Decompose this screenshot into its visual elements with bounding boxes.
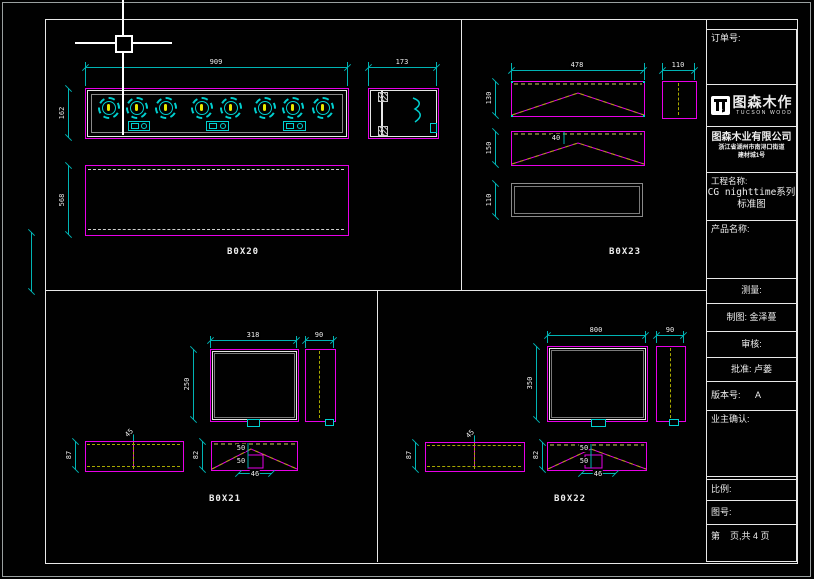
clip-profile-icon (410, 97, 424, 124)
dim-value: 800 (589, 326, 604, 334)
switch-plate-icon[interactable] (206, 121, 229, 131)
cad-viewport: 909 162 173 568 B0X20 40 (0, 0, 814, 579)
dim-value: 110 (485, 193, 493, 208)
burner-knob-icon[interactable] (282, 97, 304, 119)
order-no-label: 订单号: (707, 30, 796, 44)
burner-knob-icon[interactable] (312, 97, 334, 119)
dim-value: 87 (405, 450, 413, 460)
project-label: 工程名称: (707, 173, 796, 187)
project-value-line1: CG nighttime系列 (707, 187, 796, 199)
dimension-line (85, 67, 348, 68)
title-block: 订单号: 图森木作 TUCSON WOOD 图森木业有限公司 浙江省湖州市南浔口… (706, 29, 797, 562)
dim-value: 318 (246, 331, 261, 339)
scale-label: 比例: (707, 480, 796, 495)
stray-dimension-line (31, 232, 32, 292)
dim-value: 46 (593, 470, 603, 478)
extension-line (644, 63, 645, 80)
leader-line (133, 434, 134, 441)
dim-value: 46 (250, 470, 260, 478)
sheet-no-cell: 图号: (707, 501, 796, 525)
owner-confirm-cell: 业主确认: (707, 411, 796, 477)
tucson-logo-icon (711, 96, 730, 115)
box22-label: B0X22 (554, 494, 586, 504)
pickbox (115, 35, 133, 53)
knob-pointer (164, 104, 167, 111)
dim-value: 568 (58, 193, 66, 208)
plan-dash-top (88, 169, 344, 170)
dim-value: 50 (236, 457, 246, 465)
dimension-line (210, 340, 297, 341)
audit-label: 审核: (707, 332, 796, 350)
plate-circle (297, 123, 303, 129)
dim-value: 90 (665, 326, 675, 334)
company-cell: 图森木业有限公司 浙江省湖州市南浔口街道 建材城1号 (707, 127, 796, 173)
brand-cell: 图森木作 TUCSON WOOD (707, 85, 796, 127)
scale-cell: 比例: (707, 480, 796, 501)
dimension-line (536, 346, 537, 420)
company-address-2: 建材城1号 (707, 152, 796, 160)
box21-pyramid[interactable] (211, 441, 298, 471)
knob-pointer (263, 104, 266, 111)
box23-side-view[interactable] (662, 81, 697, 119)
quadrant-divider-bottom (377, 290, 378, 562)
box20-label: B0X20 (227, 247, 259, 257)
burner-knob-icon[interactable] (155, 97, 177, 119)
dimension-line (511, 70, 644, 71)
product-cell: 产品名称: (707, 221, 796, 279)
side-center-dash (670, 348, 671, 418)
box21-label: B0X21 (209, 494, 241, 504)
knob-pointer (107, 104, 110, 111)
knob-pointer (200, 104, 203, 111)
burner-knob-icon[interactable] (126, 97, 148, 119)
crosshair-vertical (122, 0, 124, 135)
dim-value: 50 (579, 457, 589, 465)
dimension-line (547, 335, 646, 336)
version-value: A (745, 382, 761, 401)
approve-cell: 批准: 卢蒌 (707, 358, 796, 382)
strip-center-dash (133, 442, 134, 469)
dim-value: 40 (551, 134, 561, 142)
brand-name: 图森木作 (733, 95, 793, 110)
box22-front-recess (551, 350, 644, 418)
box22-side-foot (669, 419, 679, 426)
dim-value: 150 (485, 141, 493, 156)
burner-knob-icon[interactable] (191, 97, 213, 119)
project-cell: 工程名称: CG nighttime系列 标准图 (707, 173, 796, 221)
dimension-line (305, 340, 334, 341)
quadrant-divider-top (461, 19, 462, 290)
dim-value: 130 (485, 91, 493, 106)
dim-value: 87 (65, 450, 73, 460)
dimension-line (68, 165, 69, 235)
brand-subtitle: TUCSON WOOD (736, 110, 792, 116)
dim-value: 82 (192, 450, 200, 460)
audit-cell: 审核: (707, 332, 796, 358)
box22-strip[interactable] (425, 442, 525, 472)
draft-cell: 制图: 金泽蔓 (707, 304, 796, 332)
dimension-line (656, 335, 684, 336)
strip-center-dash (474, 443, 475, 469)
switch-plate-icon[interactable] (283, 121, 306, 131)
dim-value: 350 (526, 376, 534, 391)
dimension-line (542, 442, 543, 470)
plate-circle (220, 123, 226, 129)
dim-value: 173 (395, 58, 410, 66)
plate-circle (141, 123, 147, 129)
dimension-line (68, 88, 69, 138)
company-name: 图森木业有限公司 (707, 131, 796, 144)
dimension-line (368, 67, 437, 68)
burner-knob-icon[interactable] (254, 97, 276, 119)
box21-side-outline[interactable] (305, 349, 336, 422)
burner-knob-icon[interactable] (220, 97, 242, 119)
sheet-no-label: 图号: (707, 501, 796, 518)
box22-foot (591, 419, 606, 427)
measure-cell: 测量: (707, 279, 796, 304)
side-tab (430, 123, 437, 133)
knob-pointer (321, 104, 324, 111)
knob-pointer (229, 104, 232, 111)
dim-value: 162 (58, 106, 66, 121)
hatch-block (378, 92, 388, 102)
side-center-dash (319, 351, 320, 418)
dimension-line (75, 441, 76, 470)
product-label: 产品名称: (707, 221, 796, 235)
plate-square (131, 123, 139, 129)
dim-value: 478 (570, 61, 585, 69)
box21-front-recess (214, 353, 295, 418)
box21-strip[interactable] (85, 441, 184, 472)
box23-label: B0X23 (609, 247, 641, 257)
dim-value: 82 (532, 450, 540, 460)
box21-side-foot (325, 419, 334, 426)
dim-value: 90 (314, 331, 324, 339)
version-label: 版本号: (707, 382, 741, 401)
draft-label: 制图: 金泽蔓 (707, 304, 796, 323)
burner-knob-icon[interactable] (98, 97, 120, 119)
dimension-line (495, 81, 496, 116)
dim-value: 250 (183, 377, 191, 392)
company-address-1: 浙江省湖州市南浔口街道 (707, 144, 796, 152)
quadrant-divider-horizontal (45, 290, 706, 291)
knob-pointer (135, 104, 138, 111)
box22-pyramid[interactable] (547, 442, 647, 471)
dimension-line (193, 349, 194, 420)
box23-bottom-inner (514, 186, 640, 214)
plate-square (286, 123, 294, 129)
dim-value: 50 (579, 444, 589, 452)
plate-square (209, 123, 217, 129)
dimension-line (495, 183, 496, 217)
side-center-dash (678, 83, 679, 115)
page-cell: 第 页,共 4 页 (707, 525, 796, 549)
box21-foot (247, 419, 260, 427)
switch-plate-icon[interactable] (128, 121, 150, 131)
box22-side-outline[interactable] (656, 346, 686, 422)
leader-line (474, 435, 475, 442)
dim-value: 110 (671, 61, 686, 69)
hatch-block (378, 126, 388, 136)
version-cell: 版本号: A (707, 382, 796, 411)
box20-plan-outline[interactable] (85, 165, 349, 236)
knob-pointer (291, 104, 294, 111)
project-value-line2: 标准图 (707, 199, 796, 211)
box23-mid-view[interactable] (511, 131, 645, 166)
dimension-line (202, 441, 203, 470)
dim-value: 909 (209, 58, 224, 66)
approve-label: 批准: 卢蒌 (707, 358, 796, 375)
page-label: 第 页,共 4 页 (707, 525, 796, 542)
dimension-line (415, 442, 416, 470)
order-no-cell: 订单号: (707, 30, 796, 85)
measure-label: 测量: (707, 279, 796, 296)
plan-dash-bottom (88, 229, 344, 230)
owner-confirm-label: 业主确认: (707, 411, 796, 425)
dim-value: 50 (236, 444, 246, 452)
dimension-line (495, 131, 496, 165)
dimension-line (662, 70, 695, 71)
box23-top-view[interactable] (511, 81, 645, 117)
